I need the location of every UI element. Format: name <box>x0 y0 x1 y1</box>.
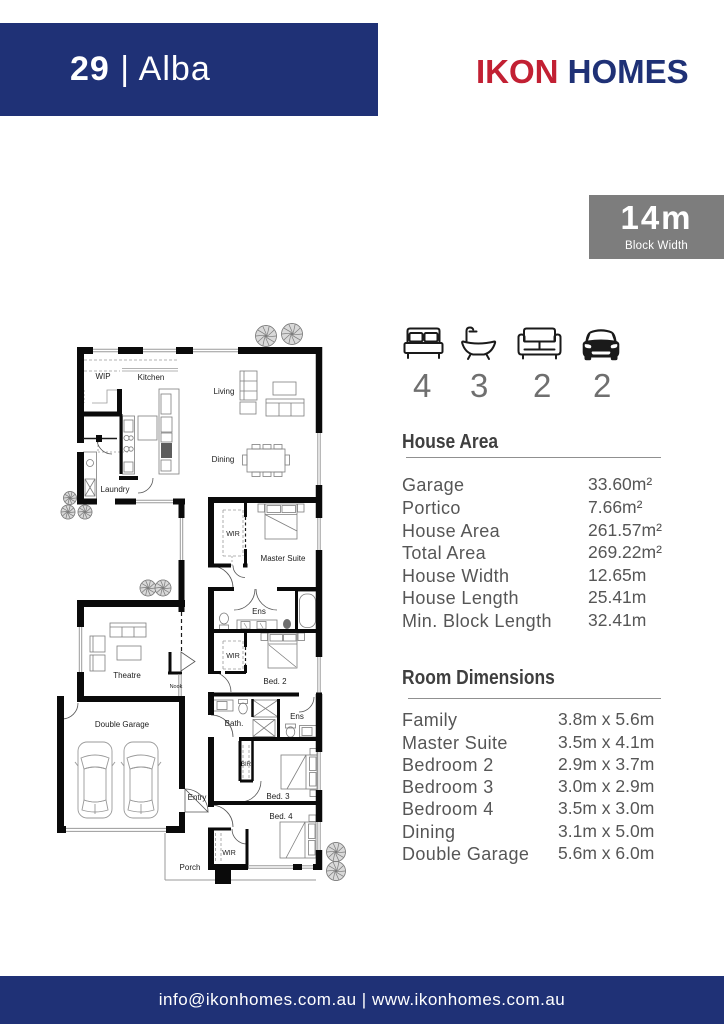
svg-text:WIR: WIR <box>226 531 240 538</box>
svg-text:Bath.: Bath. <box>225 719 244 728</box>
svg-text:Bed. 3: Bed. 3 <box>266 792 290 801</box>
svg-text:Bed. 4: Bed. 4 <box>269 812 293 821</box>
svg-text:Kitchen: Kitchen <box>138 373 165 382</box>
svg-text:Laundry: Laundry <box>101 485 130 494</box>
svg-text:Ens: Ens <box>290 712 304 721</box>
svg-text:Living: Living <box>214 387 235 396</box>
svg-text:Double Garage: Double Garage <box>95 720 150 729</box>
svg-text:WIP: WIP <box>95 372 110 381</box>
svg-text:Ens: Ens <box>252 607 266 616</box>
svg-text:Porch: Porch <box>180 863 201 872</box>
svg-text:Nook: Nook <box>170 684 183 690</box>
svg-text:Bed. 2: Bed. 2 <box>263 677 287 686</box>
svg-text:Entry: Entry <box>188 793 207 802</box>
svg-text:WIR: WIR <box>222 850 236 857</box>
svg-text:Dining: Dining <box>212 455 235 464</box>
svg-text:Theatre: Theatre <box>113 671 141 680</box>
svg-text:BIR: BIR <box>241 762 252 768</box>
svg-text:WIR: WIR <box>226 653 240 660</box>
svg-text:Master Suite: Master Suite <box>261 554 306 563</box>
